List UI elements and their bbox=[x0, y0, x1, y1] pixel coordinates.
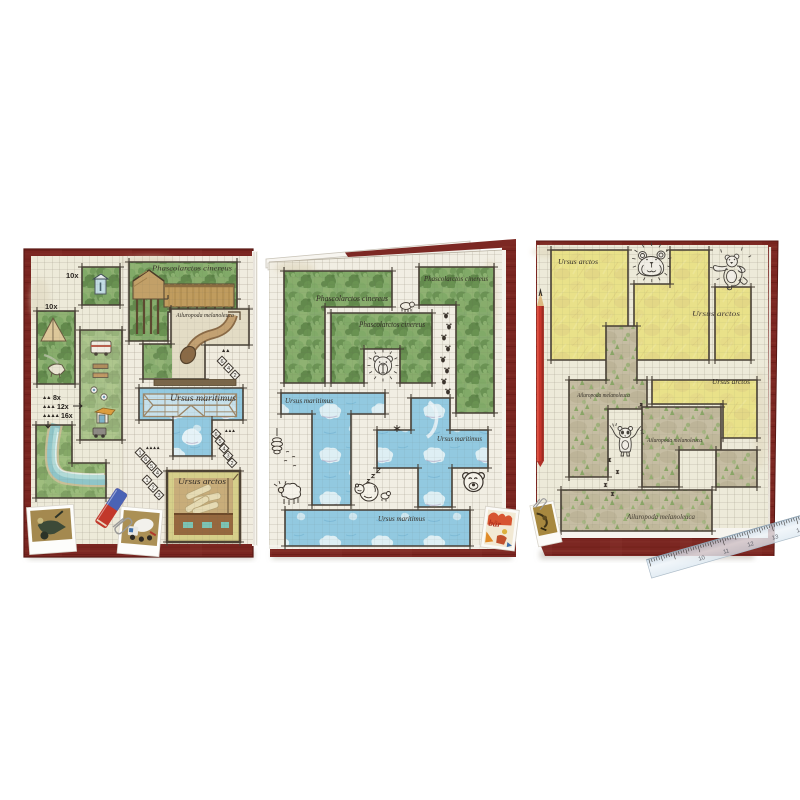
svg-text:14: 14 bbox=[796, 527, 800, 535]
svg-text:bär: bär bbox=[488, 518, 502, 530]
